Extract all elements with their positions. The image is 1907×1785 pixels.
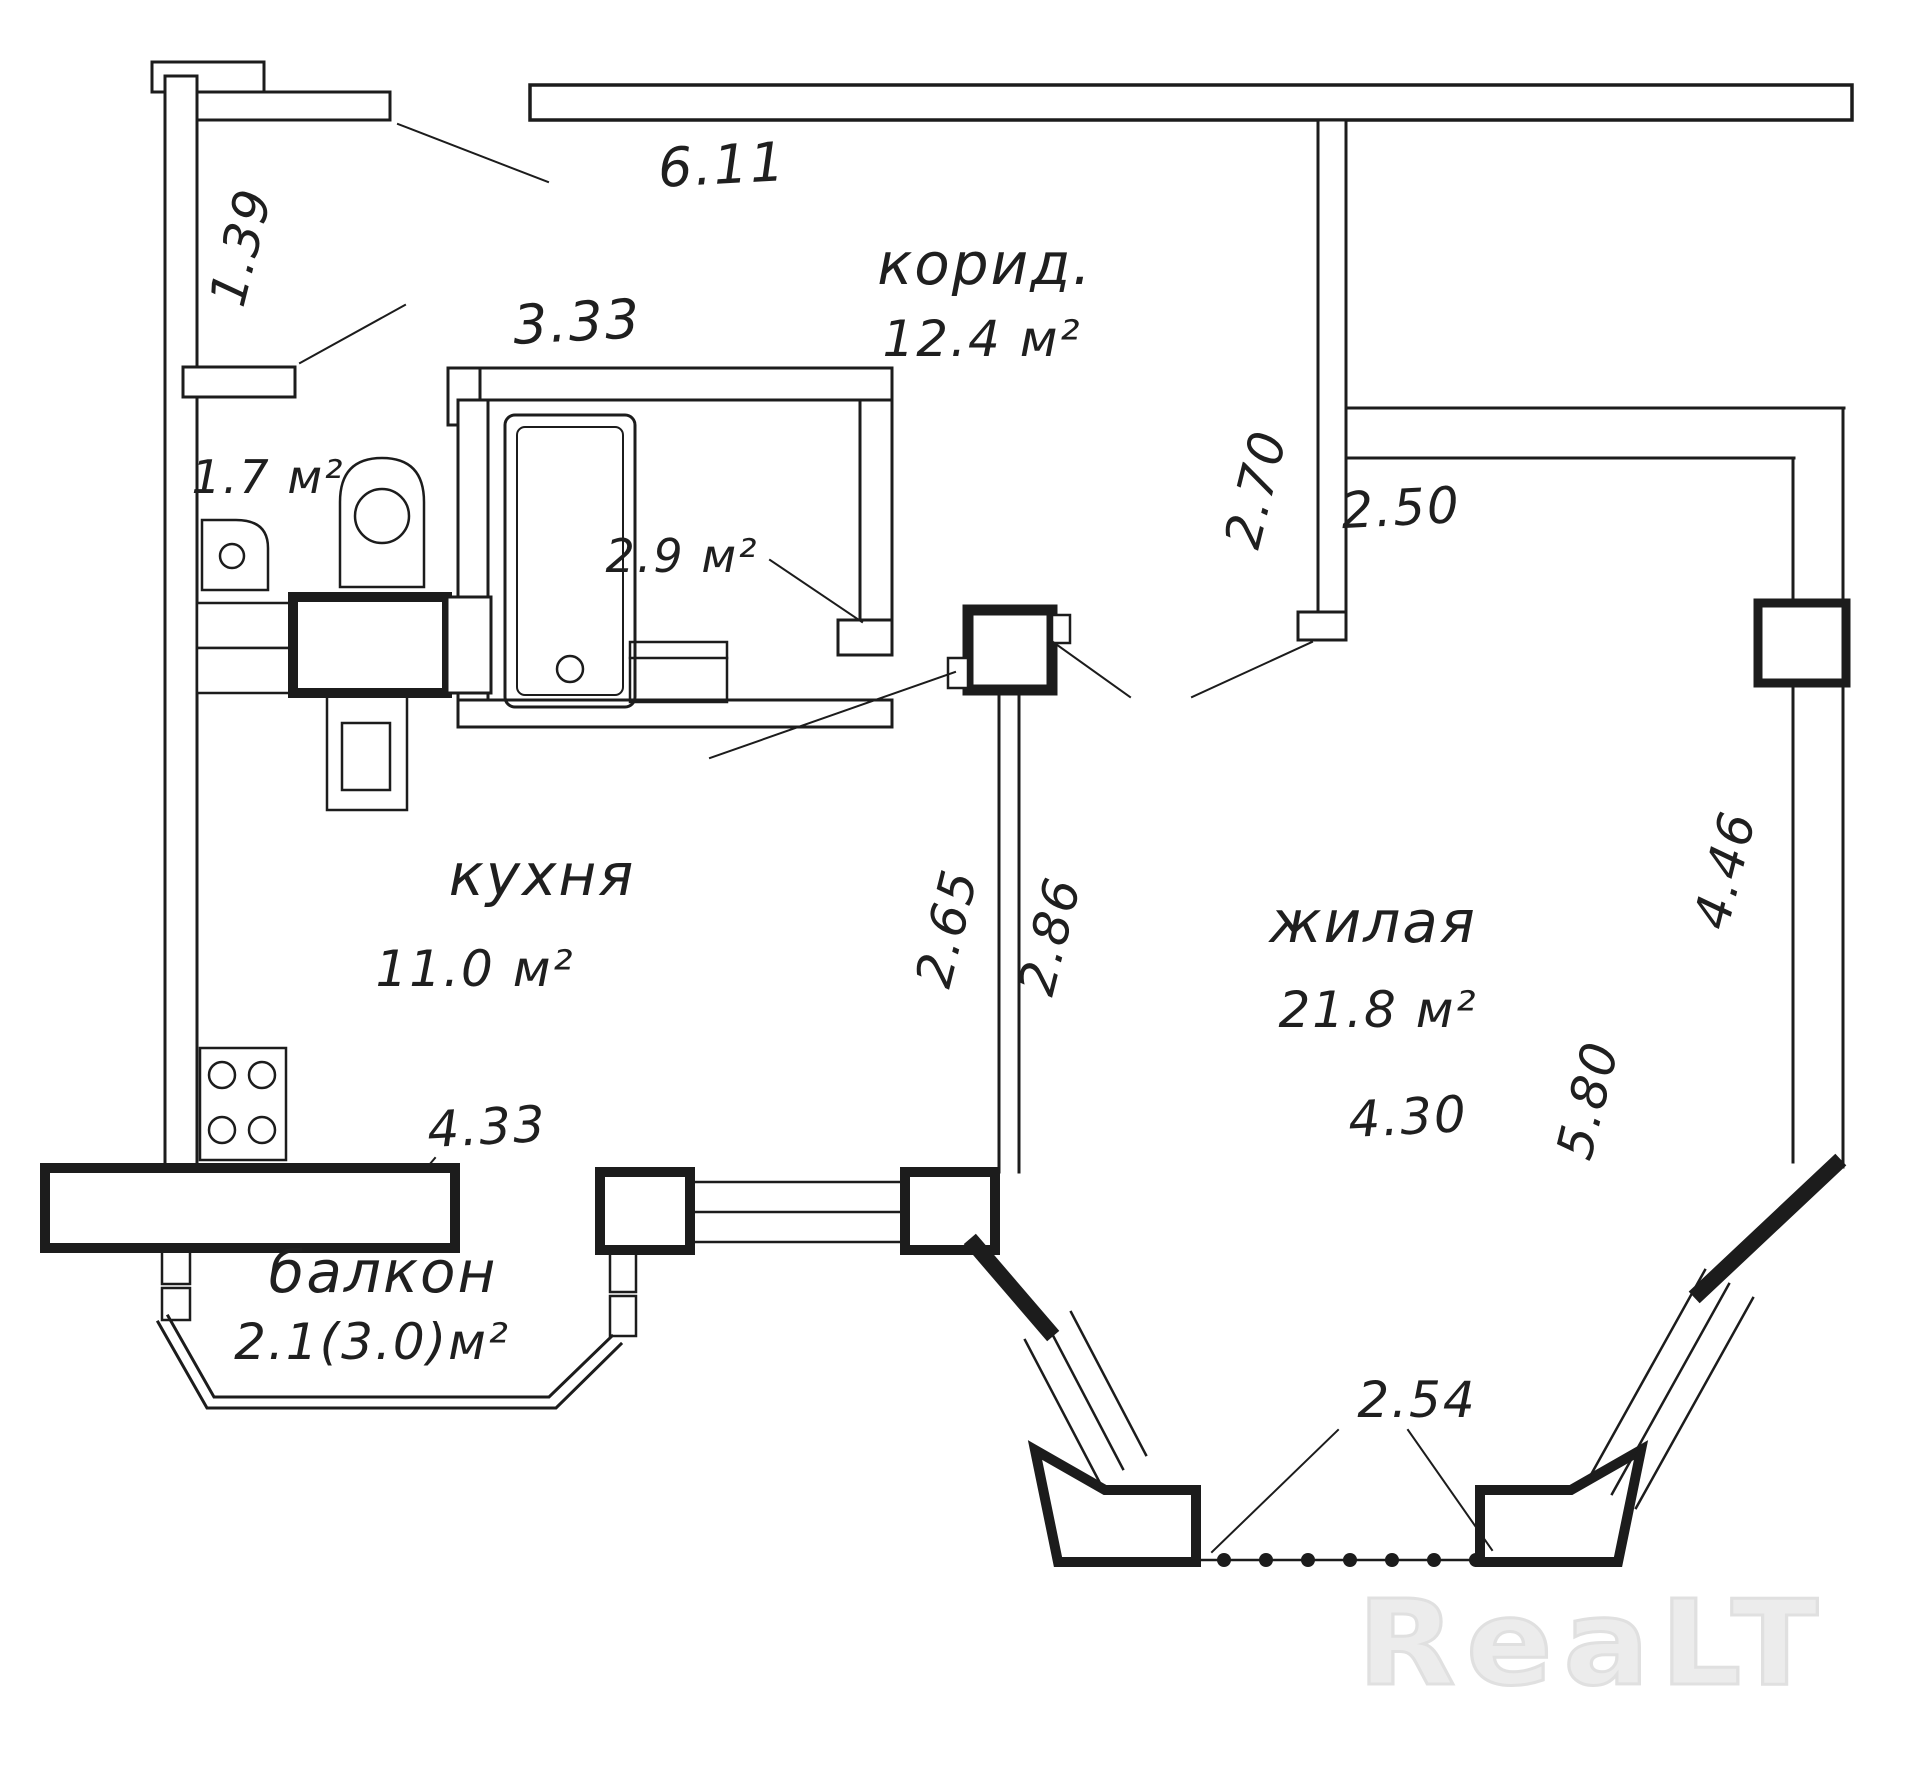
pillar-notch-right bbox=[1052, 615, 1070, 643]
toilet-icon bbox=[340, 458, 424, 587]
label-corridor-name: корид. bbox=[877, 230, 1093, 298]
stove-burner3 bbox=[209, 1117, 235, 1143]
label-living-area: 21.8 м² bbox=[1279, 981, 1478, 1039]
vent-box-side bbox=[447, 597, 491, 693]
realt-watermark: ReaLT bbox=[1357, 1574, 1829, 1712]
vent-shaft bbox=[197, 597, 491, 810]
sink-drain-icon bbox=[220, 544, 244, 568]
dim-bay-front: 2.54 bbox=[1357, 1371, 1476, 1429]
floor-plan: 6.11 1.39 3.33 корид. 12.4 м² 2.70 2.50 … bbox=[0, 0, 1907, 1785]
label-balcony-area: 2.1(3.0)м² bbox=[234, 1313, 510, 1371]
label-balcony-name: балкон bbox=[269, 1238, 498, 1306]
wall-bathroom-right bbox=[860, 400, 892, 620]
label-kitchen-name: кухня bbox=[449, 841, 636, 909]
dim-bath-top: 3.33 bbox=[511, 287, 642, 357]
stove-burner4 bbox=[249, 1117, 275, 1143]
dim-living-width: 4.30 bbox=[1347, 1085, 1469, 1149]
label-bathroom-area: 2.9 м² bbox=[606, 529, 759, 583]
sink-icon bbox=[202, 520, 268, 590]
bay-pillar-left bbox=[600, 1172, 690, 1250]
wall-wc-top bbox=[183, 367, 295, 397]
stove-burner1 bbox=[209, 1062, 235, 1088]
bay-pier-bottom-left bbox=[1035, 1450, 1196, 1562]
living-window-block bbox=[1758, 603, 1846, 683]
duct-inner bbox=[342, 723, 390, 790]
wall-corridor-vertical bbox=[1318, 120, 1346, 612]
label-corridor-area: 12.4 м² bbox=[883, 310, 1082, 368]
bay-glass-r1 bbox=[1588, 1270, 1705, 1480]
entrance-door-swing bbox=[398, 124, 548, 182]
bay-pier-bottom-right bbox=[1480, 1450, 1641, 1562]
hall-cabinet-top bbox=[197, 603, 293, 648]
stove-burner2 bbox=[249, 1062, 275, 1088]
bay-glass-r3 bbox=[1636, 1298, 1753, 1508]
kitchen-bay bbox=[45, 1168, 995, 1250]
bay-pier-diagonal-right bbox=[1700, 1165, 1835, 1292]
wall-top-left bbox=[197, 92, 390, 120]
label-kitchen-area: 11.0 м² bbox=[376, 940, 575, 998]
balcony-post-left2 bbox=[162, 1288, 190, 1320]
wall-bathroom-top bbox=[448, 368, 892, 400]
bathtub-drain-icon bbox=[557, 656, 583, 682]
dim-top-wall: 6.11 bbox=[656, 130, 787, 200]
wall-bathroom-door-jamb bbox=[838, 620, 892, 655]
dim-leader-254-left bbox=[1212, 1430, 1338, 1552]
living-bay bbox=[975, 1165, 1835, 1567]
dim-living-top: 2.50 bbox=[1340, 476, 1462, 540]
balcony-window bbox=[45, 1168, 455, 1248]
wall-top bbox=[530, 85, 1852, 120]
wall-left bbox=[165, 76, 197, 1170]
pillar bbox=[968, 610, 1052, 690]
bay-pillar-right bbox=[905, 1172, 995, 1250]
bay-glass-l3 bbox=[1071, 1312, 1146, 1455]
duct-outer bbox=[327, 693, 407, 810]
bay-glass-r2 bbox=[1612, 1284, 1729, 1494]
bay-glass-l2 bbox=[1048, 1326, 1123, 1469]
living-door-swing-right bbox=[1192, 642, 1312, 697]
corridor-wall bbox=[1298, 120, 1346, 640]
vent-box bbox=[293, 597, 447, 693]
wc-door-swing bbox=[300, 305, 405, 363]
balcony-post-left1 bbox=[162, 1248, 190, 1284]
washer-icon bbox=[630, 642, 727, 702]
toilet-bowl-icon bbox=[355, 489, 409, 543]
dim-kitchen-window: 4.33 bbox=[426, 1095, 548, 1159]
wall-bathroom-bottom bbox=[458, 700, 892, 727]
balcony-post-right1 bbox=[610, 1250, 636, 1292]
bathroom-leader bbox=[770, 560, 862, 622]
label-wc-area: 1.7 м² bbox=[192, 450, 345, 504]
bay-pier-diagonal-left bbox=[975, 1245, 1048, 1330]
balcony-post-right2 bbox=[610, 1296, 636, 1336]
wall-corridor-foot bbox=[1298, 612, 1346, 640]
label-living-name: жилая bbox=[1269, 888, 1476, 956]
living-door-swing-left bbox=[1053, 642, 1130, 697]
hall-cabinet-bottom bbox=[197, 648, 293, 693]
